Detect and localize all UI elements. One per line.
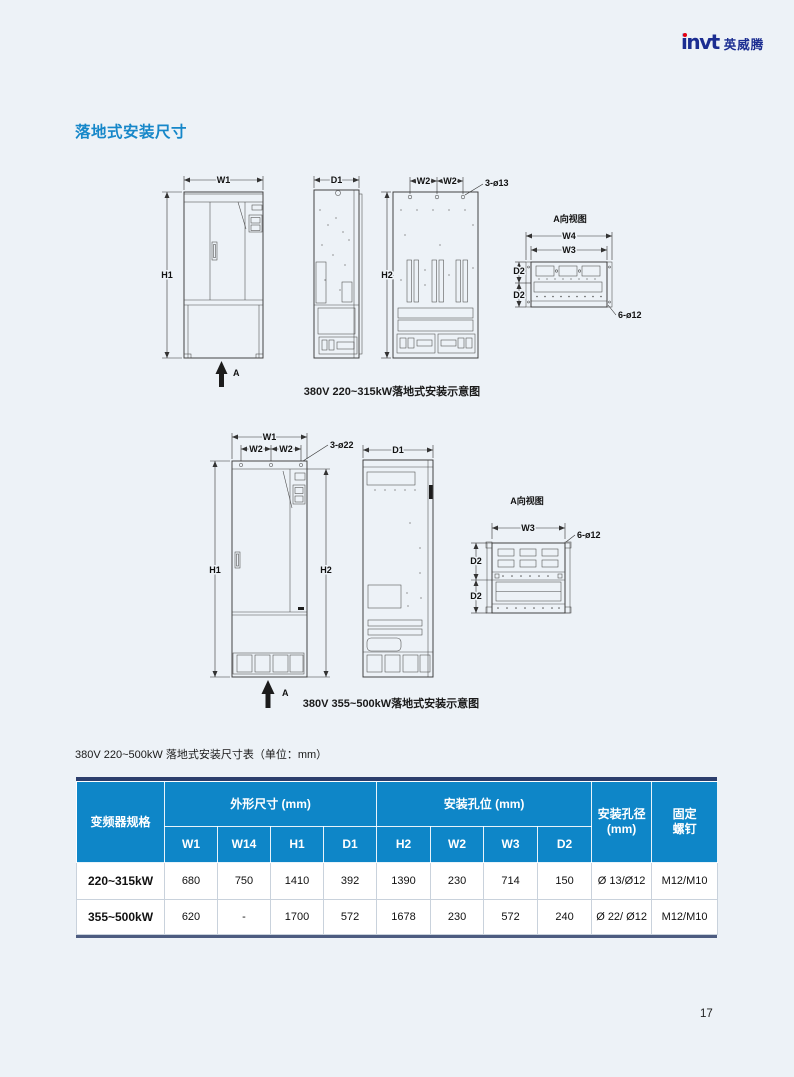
cell-w2: 230 bbox=[431, 900, 484, 935]
invt-logo: invt 英威腾 bbox=[681, 32, 764, 53]
fig2-dim-h1-label: H1 bbox=[209, 565, 221, 575]
fig1-hole-top-label: 3-ø13 bbox=[485, 178, 509, 188]
cell-w3: 714 bbox=[484, 863, 538, 900]
col-header-w3: W3 bbox=[484, 827, 538, 863]
cell-w14: - bbox=[218, 900, 271, 935]
col-header-fixing-screw: 固定 螺钉 bbox=[652, 782, 718, 863]
fig1-dim-w3-label: W3 bbox=[562, 245, 576, 255]
fig2-a-view-label: A向视图 bbox=[510, 495, 544, 506]
fig2-dim-w3-label: W3 bbox=[521, 523, 535, 533]
fig1-rear-view bbox=[393, 192, 478, 358]
table-title: 380V 220~500kW 落地式安装尺寸表（单位：mm） bbox=[75, 746, 327, 762]
cell-hole-dia: Ø 13/Ø12 bbox=[592, 863, 652, 900]
col-header-w2: W2 bbox=[431, 827, 484, 863]
cell-spec: 220~315kW bbox=[77, 863, 165, 900]
section-title: 落地式安装尺寸 bbox=[75, 120, 187, 142]
col-header-w1: W1 bbox=[165, 827, 218, 863]
fig2-hole-top-label: 3-ø22 bbox=[330, 440, 354, 450]
fig2-side-dims: D1 bbox=[363, 445, 433, 458]
fig1-side-dims: D1 bbox=[314, 175, 359, 188]
cell-d2: 240 bbox=[538, 900, 592, 935]
cell-hole-dia: Ø 22/ Ø12 bbox=[592, 900, 652, 935]
fig1-front-view bbox=[184, 192, 263, 358]
fig2-dim-d2-label-2: D2 bbox=[470, 591, 482, 601]
cell-w1: 620 bbox=[165, 900, 218, 935]
cell-screw: M12/M10 bbox=[652, 863, 718, 900]
table-row-355-500kw: 355~500kW 620 - 1700 572 1678 230 572 24… bbox=[77, 900, 718, 935]
fig1-a-view: A向视图 W4 W3 bbox=[513, 213, 641, 320]
fig1-side-view bbox=[314, 190, 362, 358]
fig1-rear-dims: W2 W2 3-ø13 H2 bbox=[381, 176, 509, 358]
cell-w14: 750 bbox=[218, 863, 271, 900]
fig1-front-dims: W1 H1 A bbox=[161, 175, 263, 387]
fig1-dim-w4-label: W4 bbox=[562, 231, 576, 241]
col-header-h2: H2 bbox=[377, 827, 431, 863]
fig1-dim-w1-label: W1 bbox=[217, 175, 231, 185]
fig1-dim-w2-label-2: W2 bbox=[443, 176, 457, 186]
fig1-a-view-label: A向视图 bbox=[553, 213, 587, 224]
cell-screw: M12/M10 bbox=[652, 900, 718, 935]
cell-h2: 1678 bbox=[377, 900, 431, 935]
col-header-spec: 变频器规格 bbox=[77, 782, 165, 863]
cell-h2: 1390 bbox=[377, 863, 431, 900]
fig1-dim-h2-label: H2 bbox=[381, 270, 393, 280]
figure2-drawing: W1 W2 W2 3-ø22 H1 H2 A bbox=[195, 428, 655, 710]
col-header-w14: W14 bbox=[218, 827, 271, 863]
col-group-mounting-holes: 安装孔位 (mm) bbox=[377, 782, 592, 827]
fig2-front-dims: W1 W2 W2 3-ø22 H1 H2 A bbox=[209, 432, 353, 708]
fig2-hole-view-label: 6-ø12 bbox=[577, 530, 601, 540]
fig2-dim-w1-label: W1 bbox=[263, 432, 277, 442]
page-number: 17 bbox=[700, 1008, 713, 1020]
fig2-dim-w2-label-1: W2 bbox=[249, 444, 263, 454]
fig2-a-view: A向视图 W3 6-ø12 bbox=[470, 495, 600, 613]
manual-page: invt 英威腾 落地式安装尺寸 bbox=[0, 0, 794, 1077]
fig2-dim-h2-label: H2 bbox=[320, 565, 332, 575]
figure2-caption: 380V 355~500kW落地式安装示意图 bbox=[281, 695, 501, 711]
col-header-hole-diameter: 安装孔径 (mm) bbox=[592, 782, 652, 863]
cell-d1: 392 bbox=[324, 863, 377, 900]
dimension-table: 变频器规格 外形尺寸 (mm) 安装孔位 (mm) 安装孔径 (mm) 固定 螺… bbox=[76, 777, 717, 938]
fig1-arrow-a-label: A bbox=[233, 368, 240, 378]
cell-d2: 150 bbox=[538, 863, 592, 900]
cell-spec: 355~500kW bbox=[77, 900, 165, 935]
table-row-220-315kw: 220~315kW 680 750 1410 392 1390 230 714 … bbox=[77, 863, 718, 900]
fig1-dim-d2-label-2: D2 bbox=[513, 290, 525, 300]
cell-w2: 230 bbox=[431, 863, 484, 900]
fig1-dim-d1-label: D1 bbox=[331, 175, 343, 185]
fig2-dim-d2-label-1: D2 bbox=[470, 556, 482, 566]
cell-h1: 1410 bbox=[271, 863, 324, 900]
fig1-dim-w2-label-1: W2 bbox=[417, 176, 431, 186]
invt-logo-text: invt bbox=[681, 32, 719, 52]
fig2-dim-d1-label: D1 bbox=[392, 445, 404, 455]
cell-d1: 572 bbox=[324, 900, 377, 935]
invt-logo-chinese: 英威腾 bbox=[724, 34, 765, 53]
fig1-dim-d2-label-1: D2 bbox=[513, 266, 525, 276]
cell-w3: 572 bbox=[484, 900, 538, 935]
fig2-side-view bbox=[363, 460, 433, 677]
logo-red-dot-icon bbox=[683, 33, 687, 37]
col-group-outline-dims: 外形尺寸 (mm) bbox=[165, 782, 377, 827]
cell-h1: 1700 bbox=[271, 900, 324, 935]
col-header-h1: H1 bbox=[271, 827, 324, 863]
figure1-drawing: W1 H1 A bbox=[155, 170, 647, 390]
fig2-front-view bbox=[232, 461, 307, 677]
fig2-dim-w2-label-2: W2 bbox=[279, 444, 293, 454]
cell-w1: 680 bbox=[165, 863, 218, 900]
col-header-d2: D2 bbox=[538, 827, 592, 863]
fig1-hole-view-label: 6-ø12 bbox=[618, 310, 642, 320]
fig1-dim-h1-label: H1 bbox=[161, 270, 173, 280]
col-header-d1: D1 bbox=[324, 827, 377, 863]
figure1-caption: 380V 220~315kW落地式安装示意图 bbox=[282, 383, 502, 399]
